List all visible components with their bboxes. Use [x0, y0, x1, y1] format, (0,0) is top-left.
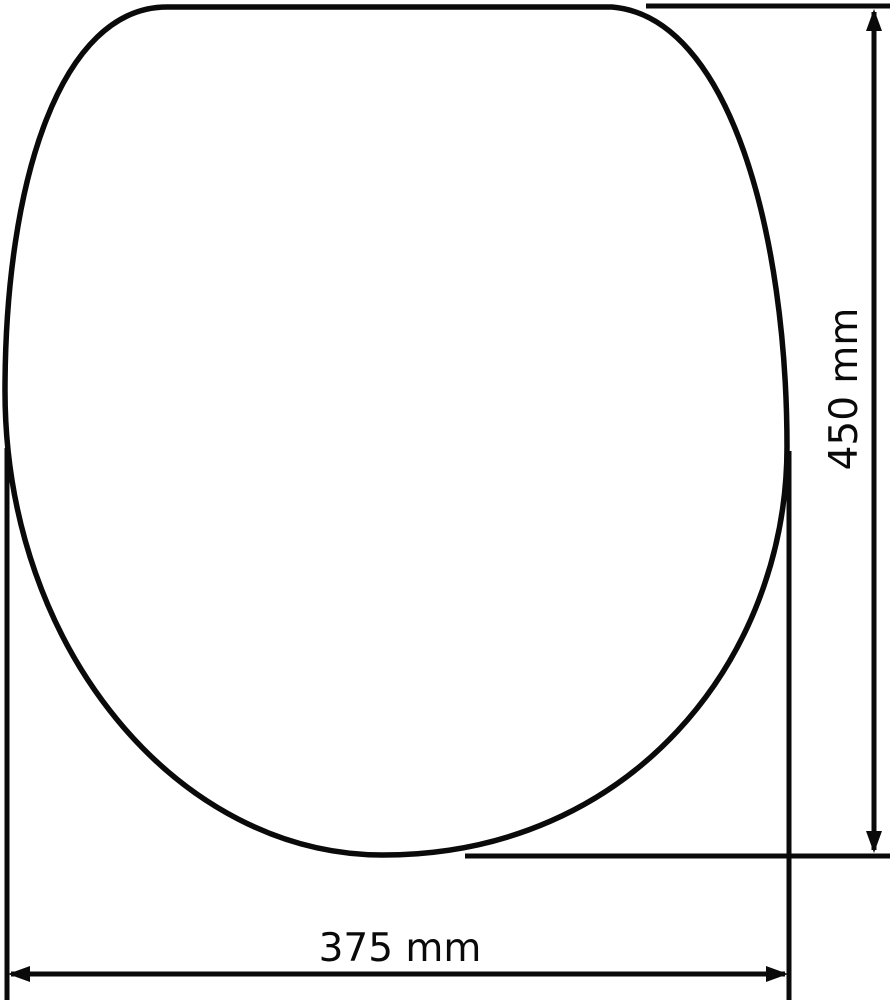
seat-outline — [5, 7, 787, 855]
arrow-up-icon — [866, 9, 882, 31]
arrow-right-icon — [766, 966, 788, 982]
arrow-left-icon — [8, 966, 30, 982]
height-dimension-label: 450 mm — [822, 308, 867, 471]
width-dimension-label: 375 mm — [319, 926, 482, 971]
arrow-down-icon — [866, 831, 882, 853]
dimension-drawing-page: 450 mm 375 mm — [0, 0, 890, 1000]
dimension-diagram-svg: 450 mm 375 mm — [0, 0, 890, 1000]
